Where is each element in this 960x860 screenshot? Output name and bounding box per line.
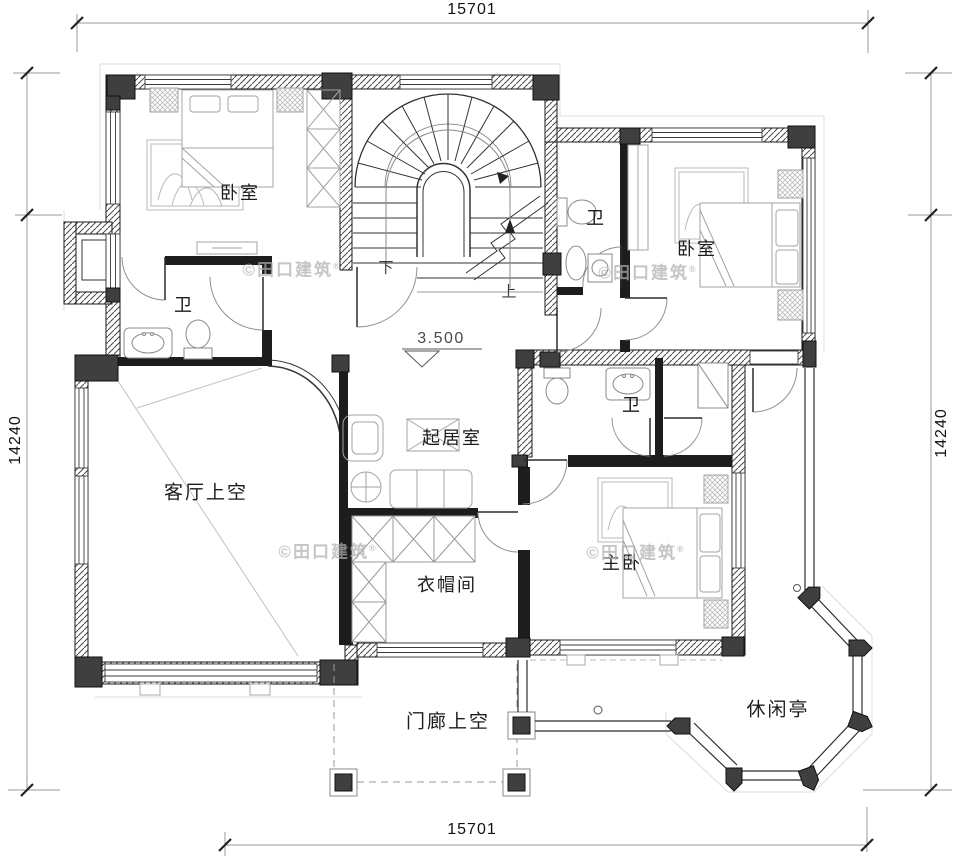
furniture-bedroom-left xyxy=(147,88,340,254)
handle-dot xyxy=(794,585,801,592)
watermark-text: ©田口建筑 xyxy=(586,544,677,563)
room-label-bedroom-right: 卧室 xyxy=(677,235,717,261)
void-lines xyxy=(112,360,347,656)
elevation-marker xyxy=(402,349,482,367)
watermark-registered-mark: ® xyxy=(333,261,342,271)
stair-up-label: 上 xyxy=(501,281,516,302)
watermark-text: ©田口建筑 xyxy=(242,261,333,280)
floorplan-page: 15701 15701 14240 14240 卧室 卫 卫 卧室 起居室 卫 … xyxy=(0,0,960,860)
watermark: ©田口建筑® xyxy=(278,538,377,563)
room-label-pavilion: 休闲亭 xyxy=(746,695,809,722)
dimension-top-label: 15701 xyxy=(447,1,497,19)
room-label-bath-middle: 卫 xyxy=(622,391,642,417)
stair-down-label: 下 xyxy=(378,257,393,278)
furniture-bedroom-right xyxy=(628,145,803,320)
room-label-bath-top-right: 卫 xyxy=(586,204,606,230)
watermark-registered-mark: ® xyxy=(677,544,686,554)
watermark-text: ©田口建筑 xyxy=(278,543,369,562)
watermark: ©田口建筑® xyxy=(586,539,685,564)
doors xyxy=(122,247,797,552)
elevation-label: 3.500 xyxy=(417,330,465,348)
watermark: ©田口建筑® xyxy=(242,256,341,281)
dimension-bottom-label: 15701 xyxy=(447,821,497,839)
handle-dot xyxy=(594,706,602,714)
room-label-cloakroom: 衣帽间 xyxy=(417,571,477,597)
closet-column xyxy=(307,90,340,207)
watermark-registered-mark: ® xyxy=(689,264,698,274)
room-label-bedroom-left: 卧室 xyxy=(220,179,260,205)
pavilion-posts xyxy=(667,581,875,792)
dimension-right-label: 14240 xyxy=(933,408,951,458)
room-label-porch-void: 门廊上空 xyxy=(406,707,490,734)
room-label-bath-left: 卫 xyxy=(174,291,194,317)
bay-window-inner xyxy=(82,240,106,280)
watermark-text: ©田口建筑 xyxy=(598,264,689,283)
room-label-sitting-room: 起居室 xyxy=(422,424,482,450)
watermark: ©田口建筑® xyxy=(598,259,697,284)
dimension-left-label: 14240 xyxy=(7,415,25,465)
watermark-registered-mark: ® xyxy=(369,543,378,553)
bath-left-fixtures xyxy=(124,320,212,359)
room-label-living-void: 客厅上空 xyxy=(164,478,248,505)
